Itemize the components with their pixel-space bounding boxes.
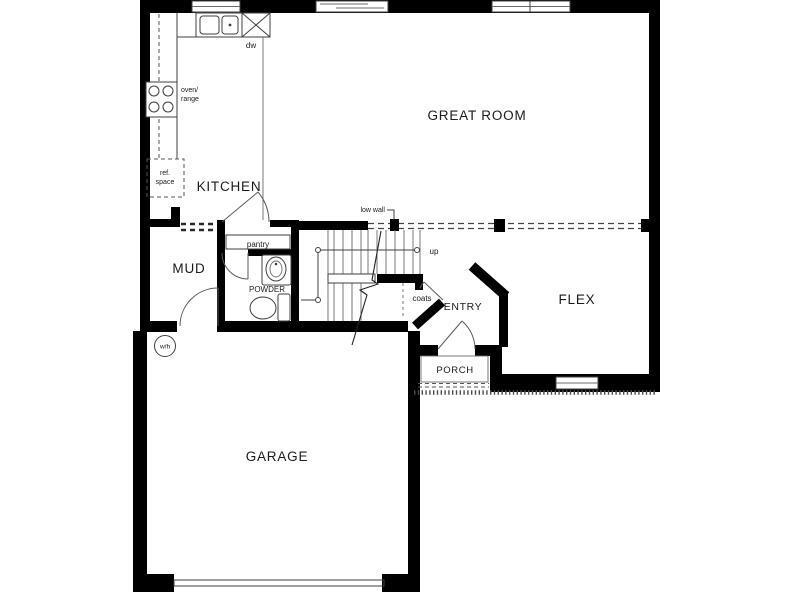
up-line-node: [316, 298, 321, 303]
mud-bottom-wall-left: [140, 321, 177, 332]
water-heater-label: w/h: [159, 344, 171, 351]
ref-space-label-line2: space: [156, 179, 175, 186]
pantry-door: [222, 192, 269, 222]
mud-door-swing: [180, 288, 218, 326]
mud-garage-wall: [219, 321, 408, 332]
stair-treads-upper: [368, 230, 420, 274]
coats-angled-wall: [415, 302, 442, 326]
ref-space-box: [147, 159, 184, 197]
up-label: up: [430, 247, 439, 256]
front-door-swing: [462, 321, 475, 349]
powder-door-swing: [222, 253, 248, 279]
porch-label: PORCH: [436, 365, 473, 376]
garage-bottom-left-corner: [133, 574, 174, 592]
kitchen-label: KITCHEN: [197, 179, 262, 194]
stair-landing-rail: [328, 274, 375, 283]
great-room-label: GREAT ROOM: [427, 108, 526, 123]
powder-label: POWDER: [249, 285, 285, 294]
water-heater: w/h: [155, 336, 176, 357]
entry-bottom-wall-left: [408, 345, 438, 356]
powder-door: [222, 253, 248, 279]
sink-basin-left: [200, 16, 219, 34]
ref-nook-wall-side: [171, 207, 180, 227]
floor-plan-page: w/h GREAT ROOM KITCHEN MUD POWDER FLEX E…: [0, 0, 800, 600]
low-wall-post-right: [641, 219, 651, 232]
mud-garage-door: [180, 288, 218, 326]
entry-angled-wall: [472, 266, 506, 296]
vanity-faucet: [275, 263, 278, 266]
coats-label: coats: [412, 294, 431, 303]
left-wall: [140, 0, 150, 331]
up-line-node: [415, 248, 420, 253]
powder-right-wall: [291, 220, 299, 332]
ref-space-label-line1: ref.: [160, 170, 170, 177]
room-labels: GREAT ROOM KITCHEN MUD POWDER FLEX ENTRY…: [172, 108, 595, 464]
garage-label: GARAGE: [246, 449, 309, 464]
sink-faucet: [229, 24, 232, 27]
flex-left-wall: [499, 293, 508, 347]
up-line-node: [316, 248, 321, 253]
low-wall-post-center: [494, 219, 505, 232]
front-door: [438, 321, 475, 349]
floor-plan-drawing: w/h GREAT ROOM KITCHEN MUD POWDER FLEX E…: [0, 0, 800, 600]
right-wall: [649, 0, 660, 392]
pantry-label: pantry: [247, 240, 269, 249]
low-wall-post-left: [390, 219, 399, 231]
entry-bottom-wall-right: [475, 345, 502, 356]
garage-right-wall: [408, 331, 420, 592]
pantry-door-leaf: [222, 192, 258, 222]
entry-label: ENTRY: [444, 301, 482, 313]
pantry-door-swing: [258, 192, 269, 222]
oven-range-label-line2: range: [181, 96, 199, 103]
stair-low-wall: [291, 221, 368, 230]
toilet-bowl: [250, 297, 276, 319]
low-wall-label: low wall: [360, 207, 385, 214]
dishwasher-label: dw: [246, 41, 256, 50]
low-wall-leader-line: [387, 210, 394, 220]
garage-left-wall: [133, 331, 147, 592]
flex-label: FLEX: [559, 292, 596, 307]
coats-wall-stub: [415, 277, 423, 290]
toilet-tank: [278, 294, 290, 321]
garage-door: [174, 580, 384, 586]
oven-range-label-line1: oven/: [181, 87, 198, 94]
front-door-leaf: [438, 321, 462, 349]
mud-label: MUD: [172, 261, 205, 276]
top-center-opening: [316, 1, 388, 12]
dashed-boundaries: [181, 219, 651, 232]
